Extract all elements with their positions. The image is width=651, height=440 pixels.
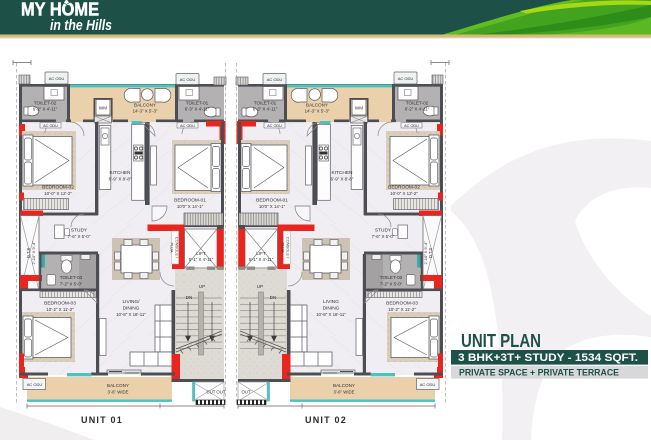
- svg-text:10'0" X 14'-1": 10'0" X 14'-1": [177, 204, 204, 209]
- svg-text:BALCONY: BALCONY: [333, 383, 355, 388]
- svg-text:10'-0" X 12'-2": 10'-0" X 12'-2": [390, 191, 418, 196]
- svg-text:7'-6" X 5'-0": 7'-6" X 5'-0": [68, 234, 91, 239]
- svg-text:2'-10" X 9'-4": 2'-10" X 9'-4": [423, 241, 428, 265]
- svg-text:UP: UP: [257, 284, 263, 289]
- svg-text:PUJA: PUJA: [170, 243, 175, 253]
- svg-text:7'-2" X 5'-0": 7'-2" X 5'-0": [60, 282, 83, 287]
- svg-text:LIVING/: LIVING/: [122, 299, 140, 305]
- svg-text:AC ODU: AC ODU: [420, 382, 436, 387]
- svg-text:7'-2" X 5'-0": 7'-2" X 5'-0": [380, 282, 403, 287]
- svg-text:DN: DN: [186, 295, 193, 300]
- svg-text:TOILET-01: TOILET-01: [254, 101, 277, 106]
- svg-text:LIFT: LIFT: [196, 251, 206, 256]
- svg-text:6'-3" X 4'-11": 6'-3" X 4'-11": [253, 107, 278, 112]
- svg-text:AC ODU: AC ODU: [404, 124, 419, 128]
- svg-text:10'-0" X 12'-2": 10'-0" X 12'-2": [44, 191, 72, 196]
- svg-text:TOILET-03: TOILET-03: [60, 275, 83, 280]
- svg-text:AC ODU: AC ODU: [27, 382, 43, 387]
- svg-text:BEDROOM-02: BEDROOM-02: [42, 185, 74, 191]
- svg-text:AC ODU: AC ODU: [43, 124, 58, 128]
- svg-text:BEDROOM-03: BEDROOM-03: [386, 301, 418, 307]
- svg-text:14'-3" X 5'-3": 14'-3" X 5'-3": [305, 109, 330, 114]
- svg-text:TOILET-01: TOILET-01: [186, 101, 209, 106]
- svg-text:AC ODU: AC ODU: [180, 124, 195, 128]
- svg-text:6'-9" X 8'-8": 6'-9" X 8'-8": [331, 177, 354, 182]
- svg-text:UNIT 02: UNIT 02: [305, 415, 347, 425]
- svg-text:7'-6" X 5'-0": 7'-6" X 5'-0": [372, 234, 395, 239]
- svg-text:TOILET-03: TOILET-03: [380, 275, 403, 280]
- svg-text:10'0" X 14'-1": 10'0" X 14'-1": [259, 204, 286, 209]
- svg-text:STUDY: STUDY: [375, 228, 392, 234]
- svg-text:WM: WM: [99, 106, 107, 111]
- svg-text:D.T.S: D.T.S: [428, 248, 433, 258]
- svg-text:TOILET-02: TOILET-02: [34, 101, 57, 106]
- svg-text:KITCHEN: KITCHEN: [331, 170, 353, 176]
- svg-text:BEDROOM-02: BEDROOM-02: [388, 185, 420, 191]
- svg-text:BEDROOM-01: BEDROOM-01: [174, 198, 206, 204]
- svg-text:BEDROOM-03: BEDROOM-03: [44, 301, 76, 307]
- svg-text:LIVING: LIVING: [323, 299, 339, 305]
- svg-text:2'-10" X 9'-4": 2'-10" X 9'-4": [31, 241, 36, 265]
- svg-text:6'-2" X 4'-11": 6'-2" X 4'-11": [405, 107, 430, 112]
- svg-text:BEDROOM-01: BEDROOM-01: [256, 198, 288, 204]
- svg-text:DN: DN: [270, 295, 277, 300]
- svg-text:LIFT: LIFT: [256, 251, 266, 256]
- svg-text:BALCONY: BALCONY: [306, 103, 328, 108]
- svg-text:10'-2" X 11'-2": 10'-2" X 11'-2": [388, 307, 416, 312]
- svg-text:CUT OUT: CUT OUT: [206, 390, 225, 395]
- svg-text:3'-6" WIDE: 3'-6" WIDE: [108, 390, 129, 395]
- svg-text:UP: UP: [199, 284, 205, 289]
- svg-text:BALCONY: BALCONY: [134, 103, 156, 108]
- svg-text:10'-8" X 18'-11": 10'-8" X 18'-11": [116, 312, 146, 317]
- svg-text:10'-8" X 18'-11": 10'-8" X 18'-11": [316, 312, 346, 317]
- svg-text:OUT: OUT: [241, 390, 250, 395]
- svg-text:BALCONY: BALCONY: [107, 383, 129, 388]
- svg-text:WM: WM: [355, 106, 363, 111]
- svg-text:PRIVATE SPACE + PRIVATE TERRAC: PRIVATE SPACE + PRIVATE TERRACE: [459, 367, 619, 377]
- svg-text:6'-2" X 4'-11": 6'-2" X 4'-11": [33, 107, 58, 112]
- svg-text:UNIT 01: UNIT 01: [81, 415, 123, 425]
- svg-text:AC ODU: AC ODU: [267, 77, 283, 82]
- svg-text:6'-3" X 4'-11": 6'-3" X 4'-11": [185, 107, 210, 112]
- svg-text:DINING: DINING: [323, 306, 340, 312]
- svg-text:AC ODU: AC ODU: [49, 76, 65, 81]
- svg-text:3 BHK+3T+ STUDY - 1534 SQFT.: 3 BHK+3T+ STUDY - 1534 SQFT.: [458, 352, 638, 364]
- svg-text:14'-3" X 5'-3": 14'-3" X 5'-3": [133, 109, 158, 114]
- svg-text:AC ODU: AC ODU: [267, 124, 282, 128]
- svg-text:TOILET-02: TOILET-02: [406, 101, 429, 106]
- svg-text:KITCHEN: KITCHEN: [109, 170, 131, 176]
- svg-text:in the Hills: in the Hills: [50, 17, 112, 34]
- svg-text:AC ODU: AC ODU: [398, 76, 414, 81]
- svg-text:10'-2" X 11'-2": 10'-2" X 11'-2": [46, 307, 74, 312]
- svg-text:6'-9" X 8'-8": 6'-9" X 8'-8": [109, 177, 132, 182]
- svg-text:AC ODU: AC ODU: [180, 77, 196, 82]
- svg-text:3'-6" WIDE: 3'-6" WIDE: [334, 390, 355, 395]
- svg-text:5'-1" X 4'-11": 5'-1" X 4'-11": [189, 257, 214, 262]
- svg-text:5'-1" X 4'-11": 5'-1" X 4'-11": [249, 257, 274, 262]
- svg-text:DINING: DINING: [123, 306, 140, 312]
- svg-text:STUDY: STUDY: [71, 228, 88, 234]
- svg-text:UNIT PLAN: UNIT PLAN: [461, 330, 541, 351]
- svg-text:PUJA: PUJA: [281, 243, 286, 253]
